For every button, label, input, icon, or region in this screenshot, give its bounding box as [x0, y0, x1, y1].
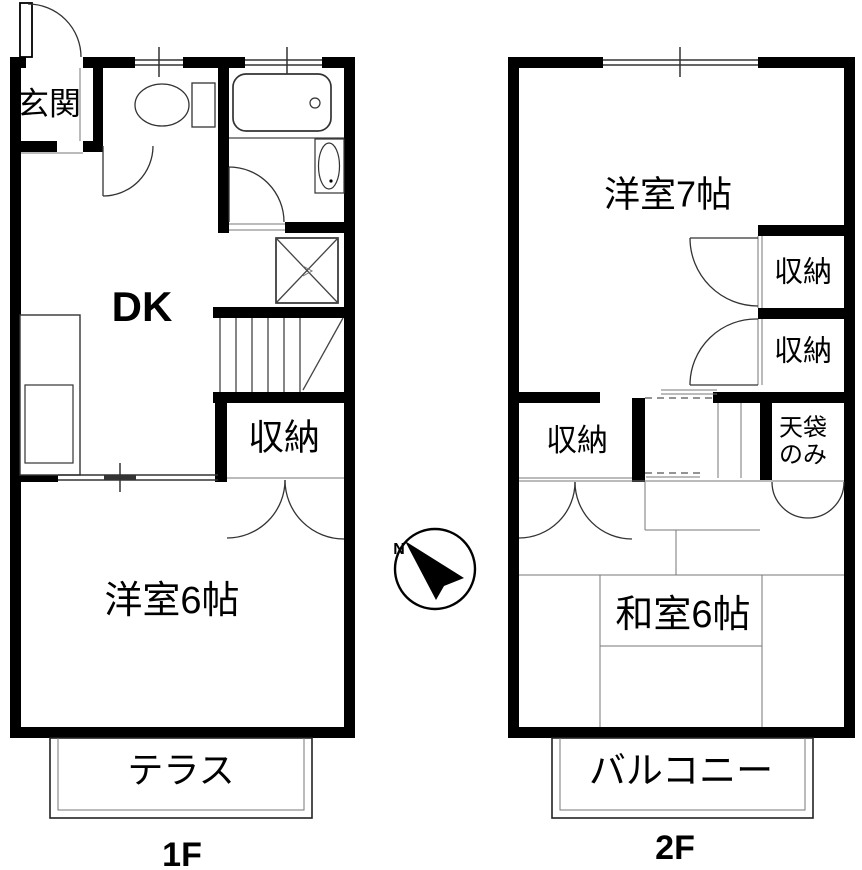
closet-1f-door-arc: [227, 480, 285, 538]
compass-north-label: N: [393, 541, 405, 558]
closet-2f-top-label: 収納: [774, 256, 832, 289]
washroom-door: [229, 167, 285, 230]
closet-2f-left-label: 収納: [546, 423, 608, 458]
washitsu-room: 和室6帖: [519, 481, 844, 727]
kitchen-sink: [25, 385, 73, 463]
washbasin-faucet-dot: [329, 179, 332, 182]
floor-plan-canvas: 玄関: [0, 0, 862, 870]
closet-1f: 収納: [227, 417, 344, 539]
closet-door-swing-arc: [690, 319, 758, 385]
toilet-door-swing-arc: [103, 146, 153, 196]
floor-1f-label: 1F: [162, 836, 202, 870]
washroom-door-swing-arc: [229, 167, 284, 222]
staircase-1f: [220, 318, 343, 392]
compass: N: [393, 529, 475, 609]
tenbukuro-closet: 天袋 のみ: [772, 414, 844, 518]
toilet-tank: [192, 83, 215, 127]
toilet-room: [103, 83, 215, 196]
stairwell-2f: [645, 390, 760, 530]
floor-plan-page: 玄関: [0, 0, 862, 870]
dk-label: DK: [112, 283, 173, 330]
washbasin-bowl: [319, 143, 340, 189]
floor-2f: 洋室7帖 収納 収納 収納 天袋 のみ: [508, 47, 855, 867]
washroom: [229, 139, 344, 230]
toilet-bowl: [135, 84, 189, 126]
floor-1f: 玄関: [10, 3, 355, 870]
tenbukuro-label-line2: のみ: [779, 441, 827, 468]
balcony: バルコニー: [552, 738, 813, 818]
tenbukuro-door-arc: [772, 482, 808, 518]
bedroom-1f-label: 洋室6帖: [104, 580, 239, 622]
closet-1f-door-arc: [285, 480, 344, 539]
window-toilet: [135, 47, 183, 77]
terrace: テラス: [50, 738, 312, 818]
entrance-door-swing-arc: [28, 4, 81, 57]
genkan-area: 玄関: [17, 68, 83, 153]
dk-room: DK: [20, 283, 172, 475]
toilet-door: [103, 146, 153, 196]
tenbukuro-label-line1: 天袋: [779, 414, 827, 441]
bathroom: [229, 74, 344, 138]
closet-1f-label: 収納: [248, 417, 320, 458]
bedroom-2f-label: 洋室7帖: [604, 174, 732, 215]
terrace-label: テラス: [127, 750, 234, 791]
closet-2f-top: 収納: [690, 236, 832, 308]
entrance-door-leaf: [20, 3, 32, 57]
sliding-door-1f: [58, 463, 218, 492]
washitsu-label: 和室6帖: [615, 594, 750, 636]
closet-door-swing-arc: [690, 238, 758, 306]
tenbukuro-door-arc: [808, 482, 844, 518]
closet-2f-mid: 収納: [690, 319, 832, 385]
entrance-door: [20, 3, 81, 57]
balcony-label: バルコニー: [589, 750, 773, 791]
window-bath: [245, 47, 322, 77]
closet-door-arc: [519, 482, 575, 538]
genkan-label: 玄関: [17, 85, 81, 121]
closet-2f-mid-label: 収納: [774, 335, 832, 368]
stair-direction-line: [303, 318, 343, 390]
window-bedroom-2f: [603, 47, 758, 77]
closet-door-arc: [575, 482, 632, 539]
washer-pan: [276, 238, 338, 303]
bathtub-drain: [310, 98, 320, 108]
floor-2f-label: 2F: [655, 829, 695, 867]
